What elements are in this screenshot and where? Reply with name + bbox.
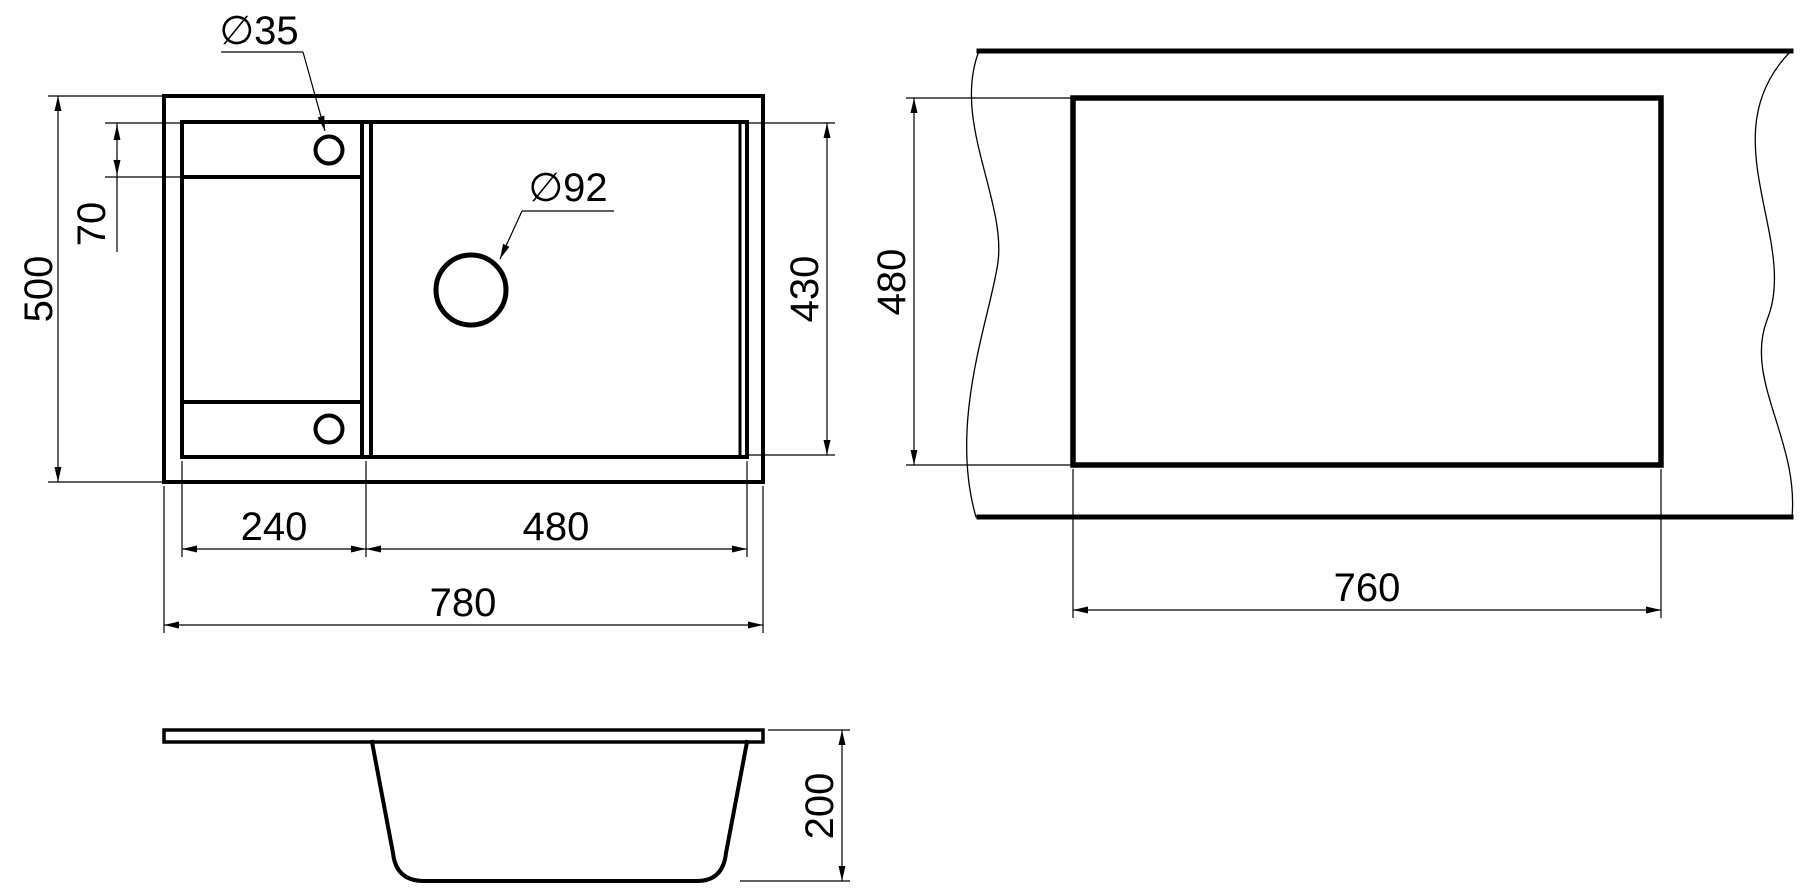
section-rim bbox=[164, 730, 763, 742]
dimension-cutout-height-480: 480 bbox=[870, 98, 1073, 465]
tap-hole-bottom bbox=[316, 416, 343, 443]
dim-label-240: 240 bbox=[241, 505, 308, 549]
leader-tap-hole-diameter: ∅35 bbox=[219, 9, 325, 131]
sink-technical-drawing: ∅35 ∅92 500 70 bbox=[0, 0, 1800, 889]
leader-drain-hole-diameter: ∅92 bbox=[500, 166, 614, 259]
plan-view: ∅35 ∅92 500 70 bbox=[17, 9, 835, 633]
break-line-right bbox=[1755, 51, 1792, 517]
dimension-drainboard-240-bowl-480: 240 480 bbox=[182, 461, 747, 557]
sink-outer-outline bbox=[164, 96, 763, 482]
drain-hole-diameter-label: ∅92 bbox=[528, 166, 607, 210]
dim-label-cutout-480: 480 bbox=[870, 249, 914, 316]
dim-label-760: 760 bbox=[1334, 566, 1401, 610]
dim-label-70: 70 bbox=[70, 202, 114, 247]
dimension-cutout-width-760: 760 bbox=[1073, 469, 1661, 618]
sink-inner-outline bbox=[182, 122, 747, 457]
section-bowl-profile bbox=[372, 742, 747, 881]
cutout-view: 480 760 bbox=[870, 51, 1793, 618]
dimension-overall-depth-500: 500 bbox=[17, 96, 164, 482]
tap-hole-top bbox=[316, 137, 343, 164]
dim-label-480: 480 bbox=[523, 505, 590, 549]
dimension-section-depth-200: 200 bbox=[740, 730, 850, 881]
tap-hole-diameter-label: ∅35 bbox=[219, 9, 298, 53]
dim-label-200: 200 bbox=[798, 773, 842, 840]
break-line-left bbox=[967, 51, 999, 517]
dim-label-430: 430 bbox=[783, 256, 827, 323]
dimension-bowl-depth-430: 430 bbox=[747, 123, 835, 455]
technical-drawing-page: ∅35 ∅92 500 70 bbox=[0, 0, 1800, 889]
drain-hole bbox=[436, 255, 506, 325]
section-view: 200 bbox=[164, 730, 850, 881]
cutout-outline bbox=[1073, 98, 1661, 465]
dim-label-500: 500 bbox=[17, 256, 61, 323]
dim-label-780: 780 bbox=[430, 581, 497, 625]
